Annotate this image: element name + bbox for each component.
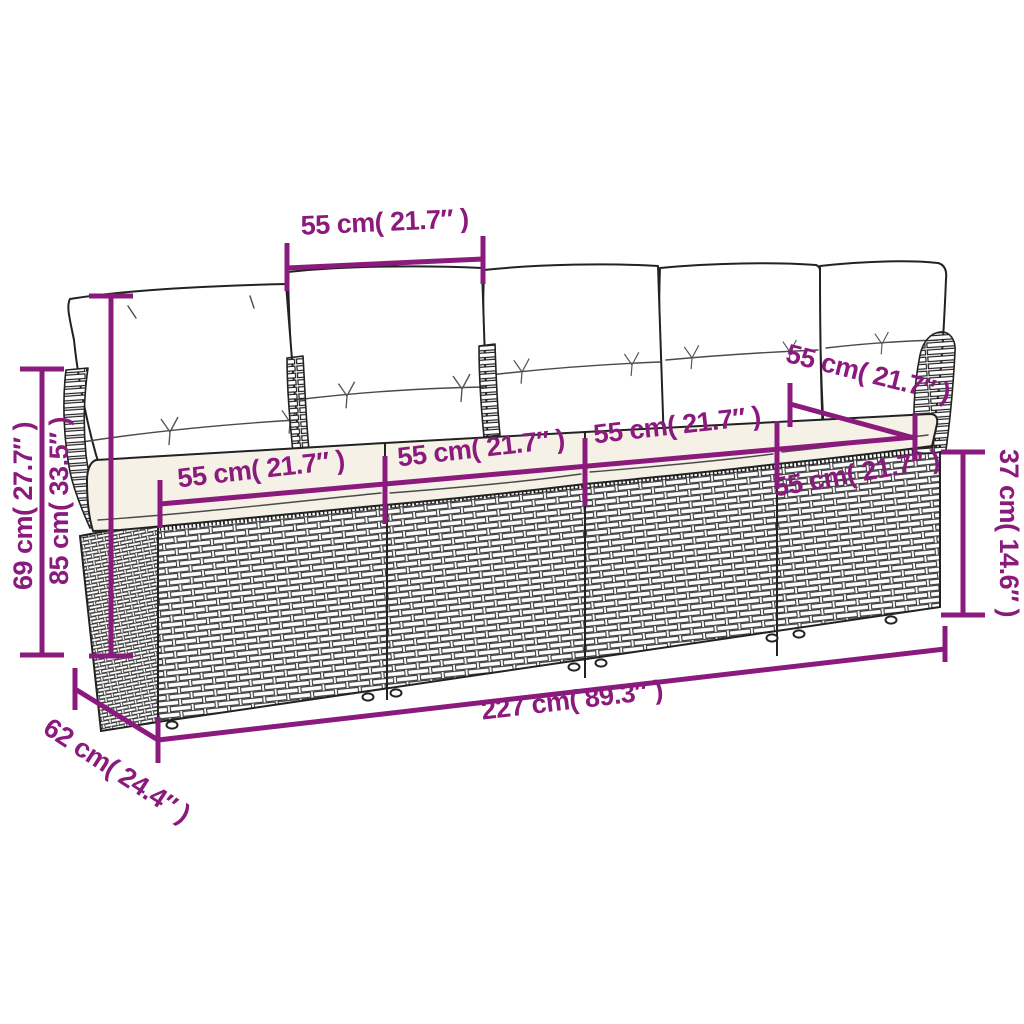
dimension-base-height-37: 37 cm( 14.6″ ) <box>941 449 1024 617</box>
dimension-label-base-height: 37 cm( 14.6″ ) <box>994 449 1024 617</box>
back-cushion-2 <box>288 266 488 460</box>
dimension-label-depth: 62 cm( 24.4″ ) <box>38 712 195 829</box>
dimension-label-back-cushion-width: 55 cm( 21.7″ ) <box>300 203 469 241</box>
sofa-dimension-diagram: 55 cm( 21.7″ ) 69 cm( 27.7″ ) 85 cm( 33.… <box>0 0 1024 1024</box>
dimension-label-total-width: 227 cm( 89.3″ ) <box>480 675 665 726</box>
dimension-diagram-canvas: 55 cm( 21.7″ ) 69 cm( 27.7″ ) 85 cm( 33.… <box>0 0 1024 1024</box>
dimension-label-backrest-height: 69 cm( 27.7″ ) <box>8 422 38 590</box>
dimension-label-total-height: 85 cm( 33.5″ ) <box>44 417 74 585</box>
back-cushion-1 <box>68 284 300 468</box>
sofa-illustration <box>64 261 955 731</box>
